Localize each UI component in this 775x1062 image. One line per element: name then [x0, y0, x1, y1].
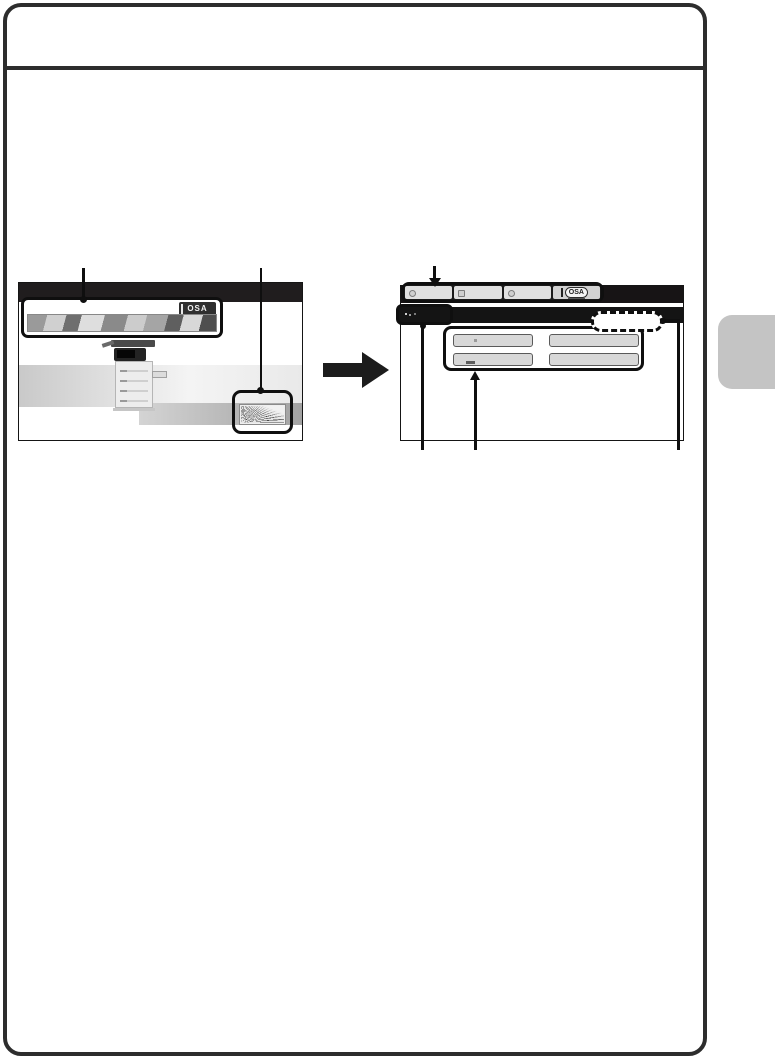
callout-leader-dotted-v — [677, 319, 680, 450]
action-button — [549, 334, 639, 347]
osa-tab-logo: OSA — [565, 287, 588, 298]
header-divider — [3, 66, 707, 70]
action-button — [453, 334, 533, 347]
callout-banner-outline: OSA — [21, 297, 223, 338]
mfp-drawer-line — [120, 390, 148, 392]
filing-tab-icon — [508, 290, 515, 297]
callout-dotted-outline — [591, 311, 663, 332]
send-tab-icon — [458, 290, 465, 297]
mfp-base — [113, 408, 155, 411]
tab-filing — [504, 286, 551, 299]
mfp-touch-screen — [117, 350, 135, 358]
button-label-smudge — [474, 339, 477, 342]
title-label-smudge — [405, 313, 407, 315]
mfp-body — [115, 361, 153, 408]
callout-dot-widget — [257, 387, 264, 394]
callout-arrowhead-panel — [470, 371, 480, 380]
mfp-drawer-line — [120, 370, 148, 372]
callout-title-label-outline — [396, 304, 453, 325]
callout-leader-widget — [260, 268, 263, 390]
mfp-feeder — [111, 340, 155, 347]
callout-leader-panel — [474, 379, 477, 450]
osa-logo-text: OSA — [187, 304, 207, 313]
callout-dot-title-label — [420, 323, 426, 329]
fan-graphic — [241, 406, 284, 423]
tab-osa: OSA — [553, 286, 600, 299]
callout-button-panel-outline — [443, 326, 644, 371]
callout-dot-banner — [80, 296, 87, 303]
action-button — [549, 353, 639, 366]
mfp-control-panel — [114, 348, 146, 361]
tab-copy — [405, 286, 452, 299]
mfp-drawer-line — [120, 380, 148, 382]
button-label-smudge — [466, 361, 475, 364]
chapter-side-tab — [718, 315, 775, 389]
mfp-output-tray — [152, 371, 167, 378]
callout-widget-outline — [232, 390, 293, 434]
manual-page: OSA OSA — [0, 0, 775, 1062]
mini-banner-widget — [239, 404, 286, 425]
page-frame — [3, 3, 707, 1056]
mfp-drawer-line — [120, 400, 148, 402]
transition-arrow-icon — [323, 350, 391, 390]
copy-tab-icon — [409, 290, 416, 297]
action-button — [453, 353, 533, 366]
tab-send — [454, 286, 501, 299]
banner-photo-strip — [27, 314, 217, 332]
callout-arrowhead-tabbar — [429, 278, 441, 287]
callout-leader-title-label — [421, 328, 424, 450]
